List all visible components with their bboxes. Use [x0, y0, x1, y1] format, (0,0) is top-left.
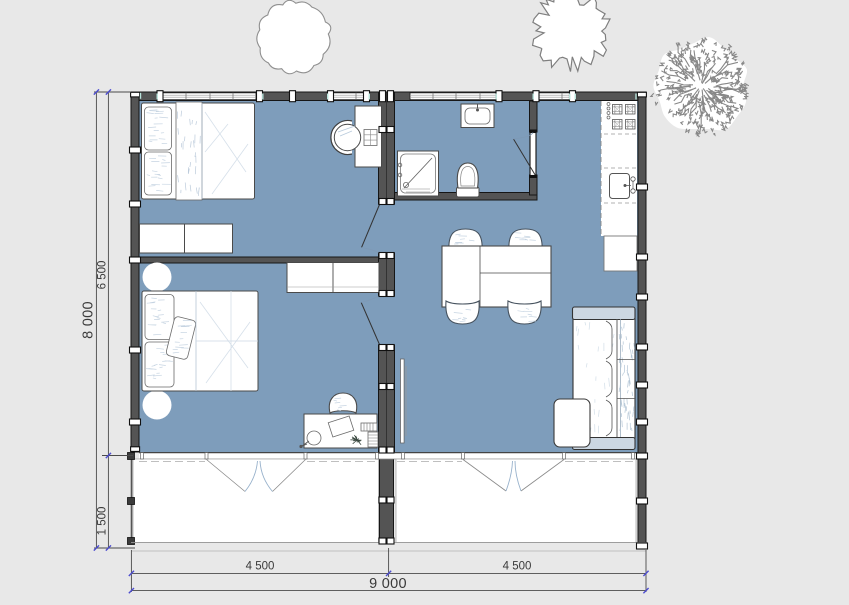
svg-text:6 500: 6 500: [97, 261, 109, 290]
svg-text:9 000: 9 000: [369, 576, 407, 592]
svg-text:4 500: 4 500: [503, 561, 532, 573]
svg-text:8 000: 8 000: [81, 301, 97, 339]
svg-text:4 500: 4 500: [246, 561, 275, 573]
svg-text:1 500: 1 500: [97, 507, 109, 536]
